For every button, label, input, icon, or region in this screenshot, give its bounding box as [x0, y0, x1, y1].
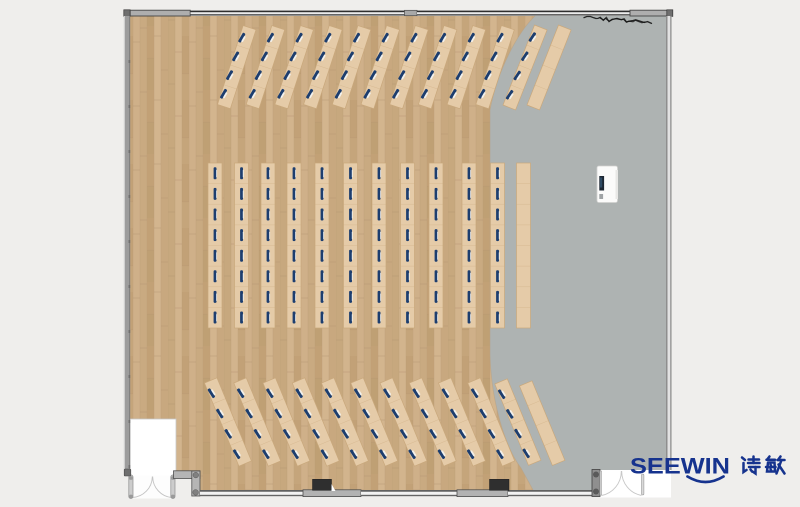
- svg-text:SEEWIN: SEEWIN: [630, 454, 730, 479]
